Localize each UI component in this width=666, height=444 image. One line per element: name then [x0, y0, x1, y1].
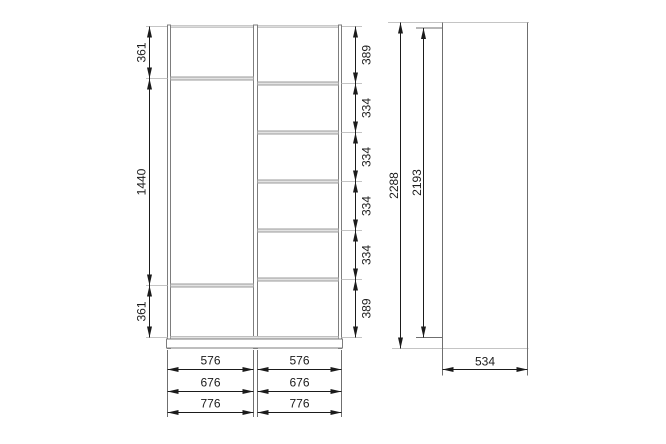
dim-label-right-5: 389 [360, 298, 374, 318]
dim-label-total-height: 2288 [387, 172, 401, 199]
shelf [258, 131, 339, 134]
shelf [171, 77, 254, 80]
dim-label-right-0: 389 [360, 45, 374, 65]
dim-label-width-row1-right: 576 [289, 354, 309, 368]
side-view [388, 23, 529, 376]
dim-label-right-1: 334 [360, 98, 374, 118]
middle-divider-panel [254, 25, 258, 348]
shelf [258, 278, 339, 281]
shelf [258, 180, 339, 183]
drawing-canvas: 361 1440 361 389 334 334 334 334 389 576… [0, 0, 666, 444]
front-view [146, 25, 362, 348]
right-side-panel [339, 25, 342, 348]
dim-label-right-2: 334 [360, 147, 374, 167]
front-width-dimensions: 576 576 676 676 776 776 [168, 350, 342, 417]
front-left-dimension-chain: 361 1440 361 [135, 27, 150, 338]
dim-label-width-row3-right: 776 [289, 397, 309, 411]
side-height-dimensions: 2288 2193 [387, 23, 424, 349]
dim-label-left-middle: 1440 [135, 168, 149, 195]
dim-label-width-row2-left: 676 [200, 376, 220, 390]
dim-label-right-3: 334 [360, 196, 374, 216]
side-depth-dimension: 534 [443, 355, 528, 370]
dim-label-left-top: 361 [135, 42, 149, 62]
shelf [171, 284, 254, 287]
dim-label-left-bottom: 361 [135, 301, 149, 321]
dim-label-width-row2-right: 676 [289, 376, 309, 390]
left-side-panel [168, 25, 171, 348]
plinth [167, 339, 343, 348]
wardrobe-technical-drawing: 361 1440 361 389 334 334 334 334 389 576… [0, 0, 666, 444]
dim-label-right-4: 334 [360, 245, 374, 265]
dim-label-width-row3-left: 776 [200, 397, 220, 411]
shelf [258, 229, 339, 232]
dim-label-panel-height: 2193 [410, 169, 424, 196]
dim-label-width-row1-left: 576 [200, 354, 220, 368]
shelf [258, 82, 339, 85]
dim-label-depth: 534 [475, 355, 495, 369]
